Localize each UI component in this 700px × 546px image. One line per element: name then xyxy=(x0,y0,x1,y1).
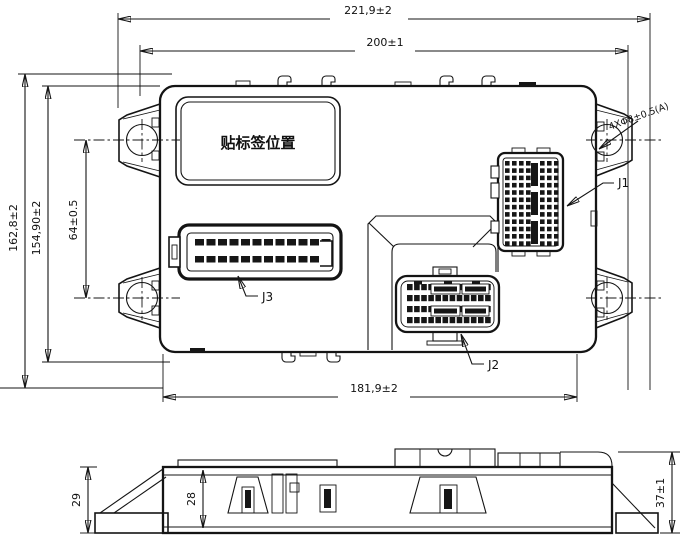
side-step-block xyxy=(498,453,560,467)
j1-pin xyxy=(505,176,510,181)
j3-pin xyxy=(241,256,250,263)
j1-pin xyxy=(505,241,510,246)
j2-pin xyxy=(471,317,477,323)
dimension-hole-spacing: 64±0.5 xyxy=(67,140,86,298)
j1-pin xyxy=(554,219,559,224)
j1-pin xyxy=(554,198,559,203)
j3-pin xyxy=(276,256,285,263)
j2-pin xyxy=(457,317,463,323)
j1-pin xyxy=(554,241,559,246)
j3-pin xyxy=(253,256,262,263)
j1-pin xyxy=(540,183,545,188)
j1-pin xyxy=(519,183,524,188)
j1-pin xyxy=(519,190,524,195)
j3-pin xyxy=(207,256,216,263)
j1-pin xyxy=(512,212,517,217)
j1-pin xyxy=(540,205,545,210)
side-right-cap xyxy=(560,452,612,466)
dim-label-overall-width: 221,9±2 xyxy=(344,4,392,17)
j1-pin xyxy=(512,241,517,246)
dim-label-hole-spacing: 64±0.5 xyxy=(67,200,80,241)
j2-pin xyxy=(414,295,420,301)
j3-pin xyxy=(241,239,250,246)
j1-pin xyxy=(540,190,545,195)
j1-label: J1 xyxy=(617,176,629,190)
dim-label-body-height: 154,90±2 xyxy=(30,201,43,256)
j2-pin xyxy=(471,295,477,301)
j2-pin xyxy=(407,284,413,290)
j3-pin xyxy=(230,256,239,263)
j1-pin xyxy=(547,227,552,232)
j1-pin xyxy=(547,183,552,188)
dim-label-inner-width: 200±1 xyxy=(366,36,403,49)
hole-note-text: 4XΦ8±0.5(A) xyxy=(607,101,670,133)
j2-pin xyxy=(414,317,420,323)
j1-pin xyxy=(505,205,510,210)
dim-label-side-overall-height: 37±1 xyxy=(654,478,667,508)
j1-pin xyxy=(540,227,545,232)
j1-pin xyxy=(554,234,559,239)
j1-pin xyxy=(512,219,517,224)
j2-pin xyxy=(421,306,427,312)
side-left-bracket xyxy=(95,469,168,533)
j1-pin xyxy=(526,161,531,166)
j1-pin xyxy=(526,234,531,239)
label-plate-text: 贴标签位置 xyxy=(220,134,295,152)
j1-pin xyxy=(519,161,524,166)
j1-pin xyxy=(547,161,552,166)
j2-pin xyxy=(414,284,420,290)
ecu-engineering-drawing: 221,9±2 200±1 162,8±2 154,90±2 64±0.5 18… xyxy=(0,0,700,546)
j1-pin xyxy=(505,168,510,173)
j1-pin xyxy=(547,212,552,217)
side-right-bracket xyxy=(612,483,658,533)
j1-connector xyxy=(491,148,563,256)
j2-pin xyxy=(485,317,491,323)
j1-pin xyxy=(519,176,524,181)
j1-pin xyxy=(554,168,559,173)
side-view: 29 28 37±1 xyxy=(70,449,680,533)
j1-pin xyxy=(512,168,517,173)
j1-pin xyxy=(547,219,552,224)
j2-pin xyxy=(407,306,413,312)
j2-pin xyxy=(421,284,427,290)
j3-pin xyxy=(299,256,308,263)
j1-pin xyxy=(554,161,559,166)
j1-pin xyxy=(526,198,531,203)
j2-pin xyxy=(421,317,427,323)
j1-pin xyxy=(526,183,531,188)
j2-pin xyxy=(485,295,491,301)
j1-pin xyxy=(512,234,517,239)
j1-pin xyxy=(540,234,545,239)
j1-pin xyxy=(526,190,531,195)
j3-label: J3 xyxy=(261,290,273,304)
j1-pin xyxy=(519,234,524,239)
dimension-side-overall-height: 37±1 xyxy=(618,452,680,533)
j1-pin xyxy=(547,198,552,203)
j1-pin xyxy=(512,205,517,210)
j1-pin xyxy=(519,219,524,224)
j1-pin xyxy=(512,183,517,188)
j1-pin xyxy=(547,241,552,246)
j1-pin xyxy=(505,190,510,195)
j1-pin xyxy=(512,176,517,181)
j1-pin xyxy=(554,190,559,195)
j3-pin xyxy=(218,239,227,246)
main-view: 贴标签位置 xyxy=(160,76,597,362)
top-edge-clips xyxy=(236,76,536,86)
j1-pin xyxy=(505,212,510,217)
j1-pin xyxy=(512,227,517,232)
j1-pin xyxy=(547,234,552,239)
j1-pin xyxy=(519,227,524,232)
j1-pin xyxy=(540,241,545,246)
j2-pin xyxy=(428,295,434,301)
j1-pin xyxy=(547,176,552,181)
j3-pin xyxy=(299,239,308,246)
j1-pin xyxy=(519,205,524,210)
j2-pin xyxy=(450,295,456,301)
dim-label-side-bracket-height: 29 xyxy=(70,493,83,507)
j2-pin xyxy=(457,295,463,301)
j3-pin xyxy=(195,239,204,246)
j3-pin xyxy=(218,256,227,263)
j1-pin xyxy=(526,227,531,232)
j3-key-notch xyxy=(320,241,332,266)
j1-pin xyxy=(505,234,510,239)
j1-pin xyxy=(512,198,517,203)
j1-pin xyxy=(526,212,531,217)
j3-connector xyxy=(169,225,341,279)
j1-pin xyxy=(519,168,524,173)
j1-pin xyxy=(519,241,524,246)
j1-pin xyxy=(540,198,545,203)
dim-label-bottom-width: 181,9±2 xyxy=(350,382,398,395)
j1-pin xyxy=(540,168,545,173)
j3-pin xyxy=(253,239,262,246)
engineering-drawing-sheet: 221,9±2 200±1 162,8±2 154,90±2 64±0.5 18… xyxy=(0,0,700,546)
j3-pin xyxy=(287,256,296,263)
j3-pin xyxy=(276,239,285,246)
dim-label-side-body-height: 28 xyxy=(185,492,198,506)
mounting-flange-top-left xyxy=(119,104,160,177)
j1-pin xyxy=(554,227,559,232)
j1-pin xyxy=(540,176,545,181)
j1-pin xyxy=(540,161,545,166)
j2-pin xyxy=(478,317,484,323)
j2-pin xyxy=(464,317,470,323)
j2-label: J2 xyxy=(487,358,499,372)
j1-pin xyxy=(526,205,531,210)
dimension-bottom-width: 181,9±2 xyxy=(163,382,577,397)
j3-pin xyxy=(264,256,273,263)
j2-pin xyxy=(464,295,470,301)
j2-pin xyxy=(443,317,449,323)
side-j2-block xyxy=(395,449,495,467)
j3-pin xyxy=(310,256,319,263)
j1-pin xyxy=(554,205,559,210)
side-body-outline xyxy=(163,467,612,533)
j1-pin xyxy=(526,241,531,246)
j1-pin xyxy=(505,198,510,203)
j1-pin xyxy=(512,190,517,195)
j3-pin xyxy=(230,239,239,246)
j3-pin xyxy=(287,239,296,246)
j2-pin xyxy=(407,295,413,301)
j1-pin xyxy=(554,183,559,188)
j2-pin xyxy=(450,317,456,323)
j1-pin xyxy=(519,212,524,217)
j1-pin xyxy=(547,190,552,195)
j2-pin xyxy=(435,317,441,323)
dimension-side-bracket-height: 29 xyxy=(70,467,97,533)
j1-pin xyxy=(505,183,510,188)
dimension-inner-width: 200±1 xyxy=(140,36,628,51)
j1-pin xyxy=(505,161,510,166)
j1-pin xyxy=(547,168,552,173)
j2-pin xyxy=(443,295,449,301)
j3-pin xyxy=(264,239,273,246)
j1-pin xyxy=(540,219,545,224)
j1-pin xyxy=(505,227,510,232)
dimension-overall-width: 221,9±2 xyxy=(118,4,650,19)
j1-pin xyxy=(547,205,552,210)
dim-label-overall-height: 162,8±2 xyxy=(7,204,20,252)
j2-pin xyxy=(407,317,413,323)
j1-pin xyxy=(554,212,559,217)
j3-pin xyxy=(195,256,204,263)
j2-pin xyxy=(421,295,427,301)
j2-pin xyxy=(478,295,484,301)
j1-pin xyxy=(540,212,545,217)
j1-pin xyxy=(526,219,531,224)
j1-pin xyxy=(526,176,531,181)
j2-pin xyxy=(414,306,420,312)
j1-pin xyxy=(554,176,559,181)
j1-pin xyxy=(519,198,524,203)
j1-pin xyxy=(526,168,531,173)
dimension-body-height: 154,90±2 xyxy=(30,86,48,362)
dimension-overall-height: 162,8±2 xyxy=(7,74,25,388)
j1-pin xyxy=(505,219,510,224)
j2-pin xyxy=(428,317,434,323)
j3-pin xyxy=(207,239,216,246)
j2-pin xyxy=(435,295,441,301)
j1-pin xyxy=(512,161,517,166)
j3-pin xyxy=(310,239,319,246)
